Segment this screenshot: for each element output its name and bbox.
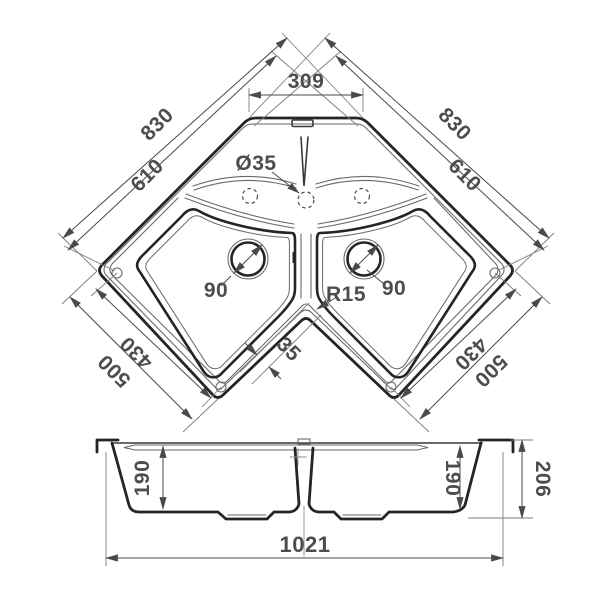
dim-top-width: 309	[288, 70, 325, 93]
dim-right-bowl-depth: 190	[441, 460, 464, 497]
right-rim-lip	[479, 440, 513, 452]
dim-overall-height: 206	[531, 461, 554, 498]
dim-left-outer: 830	[136, 103, 178, 145]
dim-overall-length: 1021	[280, 532, 331, 557]
faucet-hole-center	[298, 192, 314, 208]
sink-dimension-drawing: 309 830 610 830 610 430 500 430 500 Ø35 …	[0, 0, 600, 600]
dim-divider-width: 35	[272, 333, 305, 366]
faucet-hole-right	[355, 189, 370, 204]
drawing-canvas: 309 830 610 830 610 430 500 430 500 Ø35 …	[0, 0, 600, 600]
overflow-slot	[292, 120, 313, 127]
section-view: 190 190 206 1021	[97, 439, 554, 566]
center-groove	[301, 137, 308, 186]
top-view: 309 830 610 830 610 430 500 430 500 Ø35 …	[58, 33, 554, 432]
divider-overflow-mark	[293, 252, 296, 263]
divider-crosshair	[290, 449, 306, 465]
dim-faucet-hole: Ø35	[235, 152, 276, 175]
dim-right-outer: 830	[434, 103, 476, 145]
dim-left-drain: 90	[204, 279, 228, 302]
dim-corner-radius: R15	[326, 283, 366, 306]
dim-right-drain: 90	[382, 277, 406, 300]
dim-left-bowl-depth: 190	[131, 460, 154, 497]
faucet-hole-left	[243, 189, 258, 204]
deck-ledge	[124, 445, 428, 450]
